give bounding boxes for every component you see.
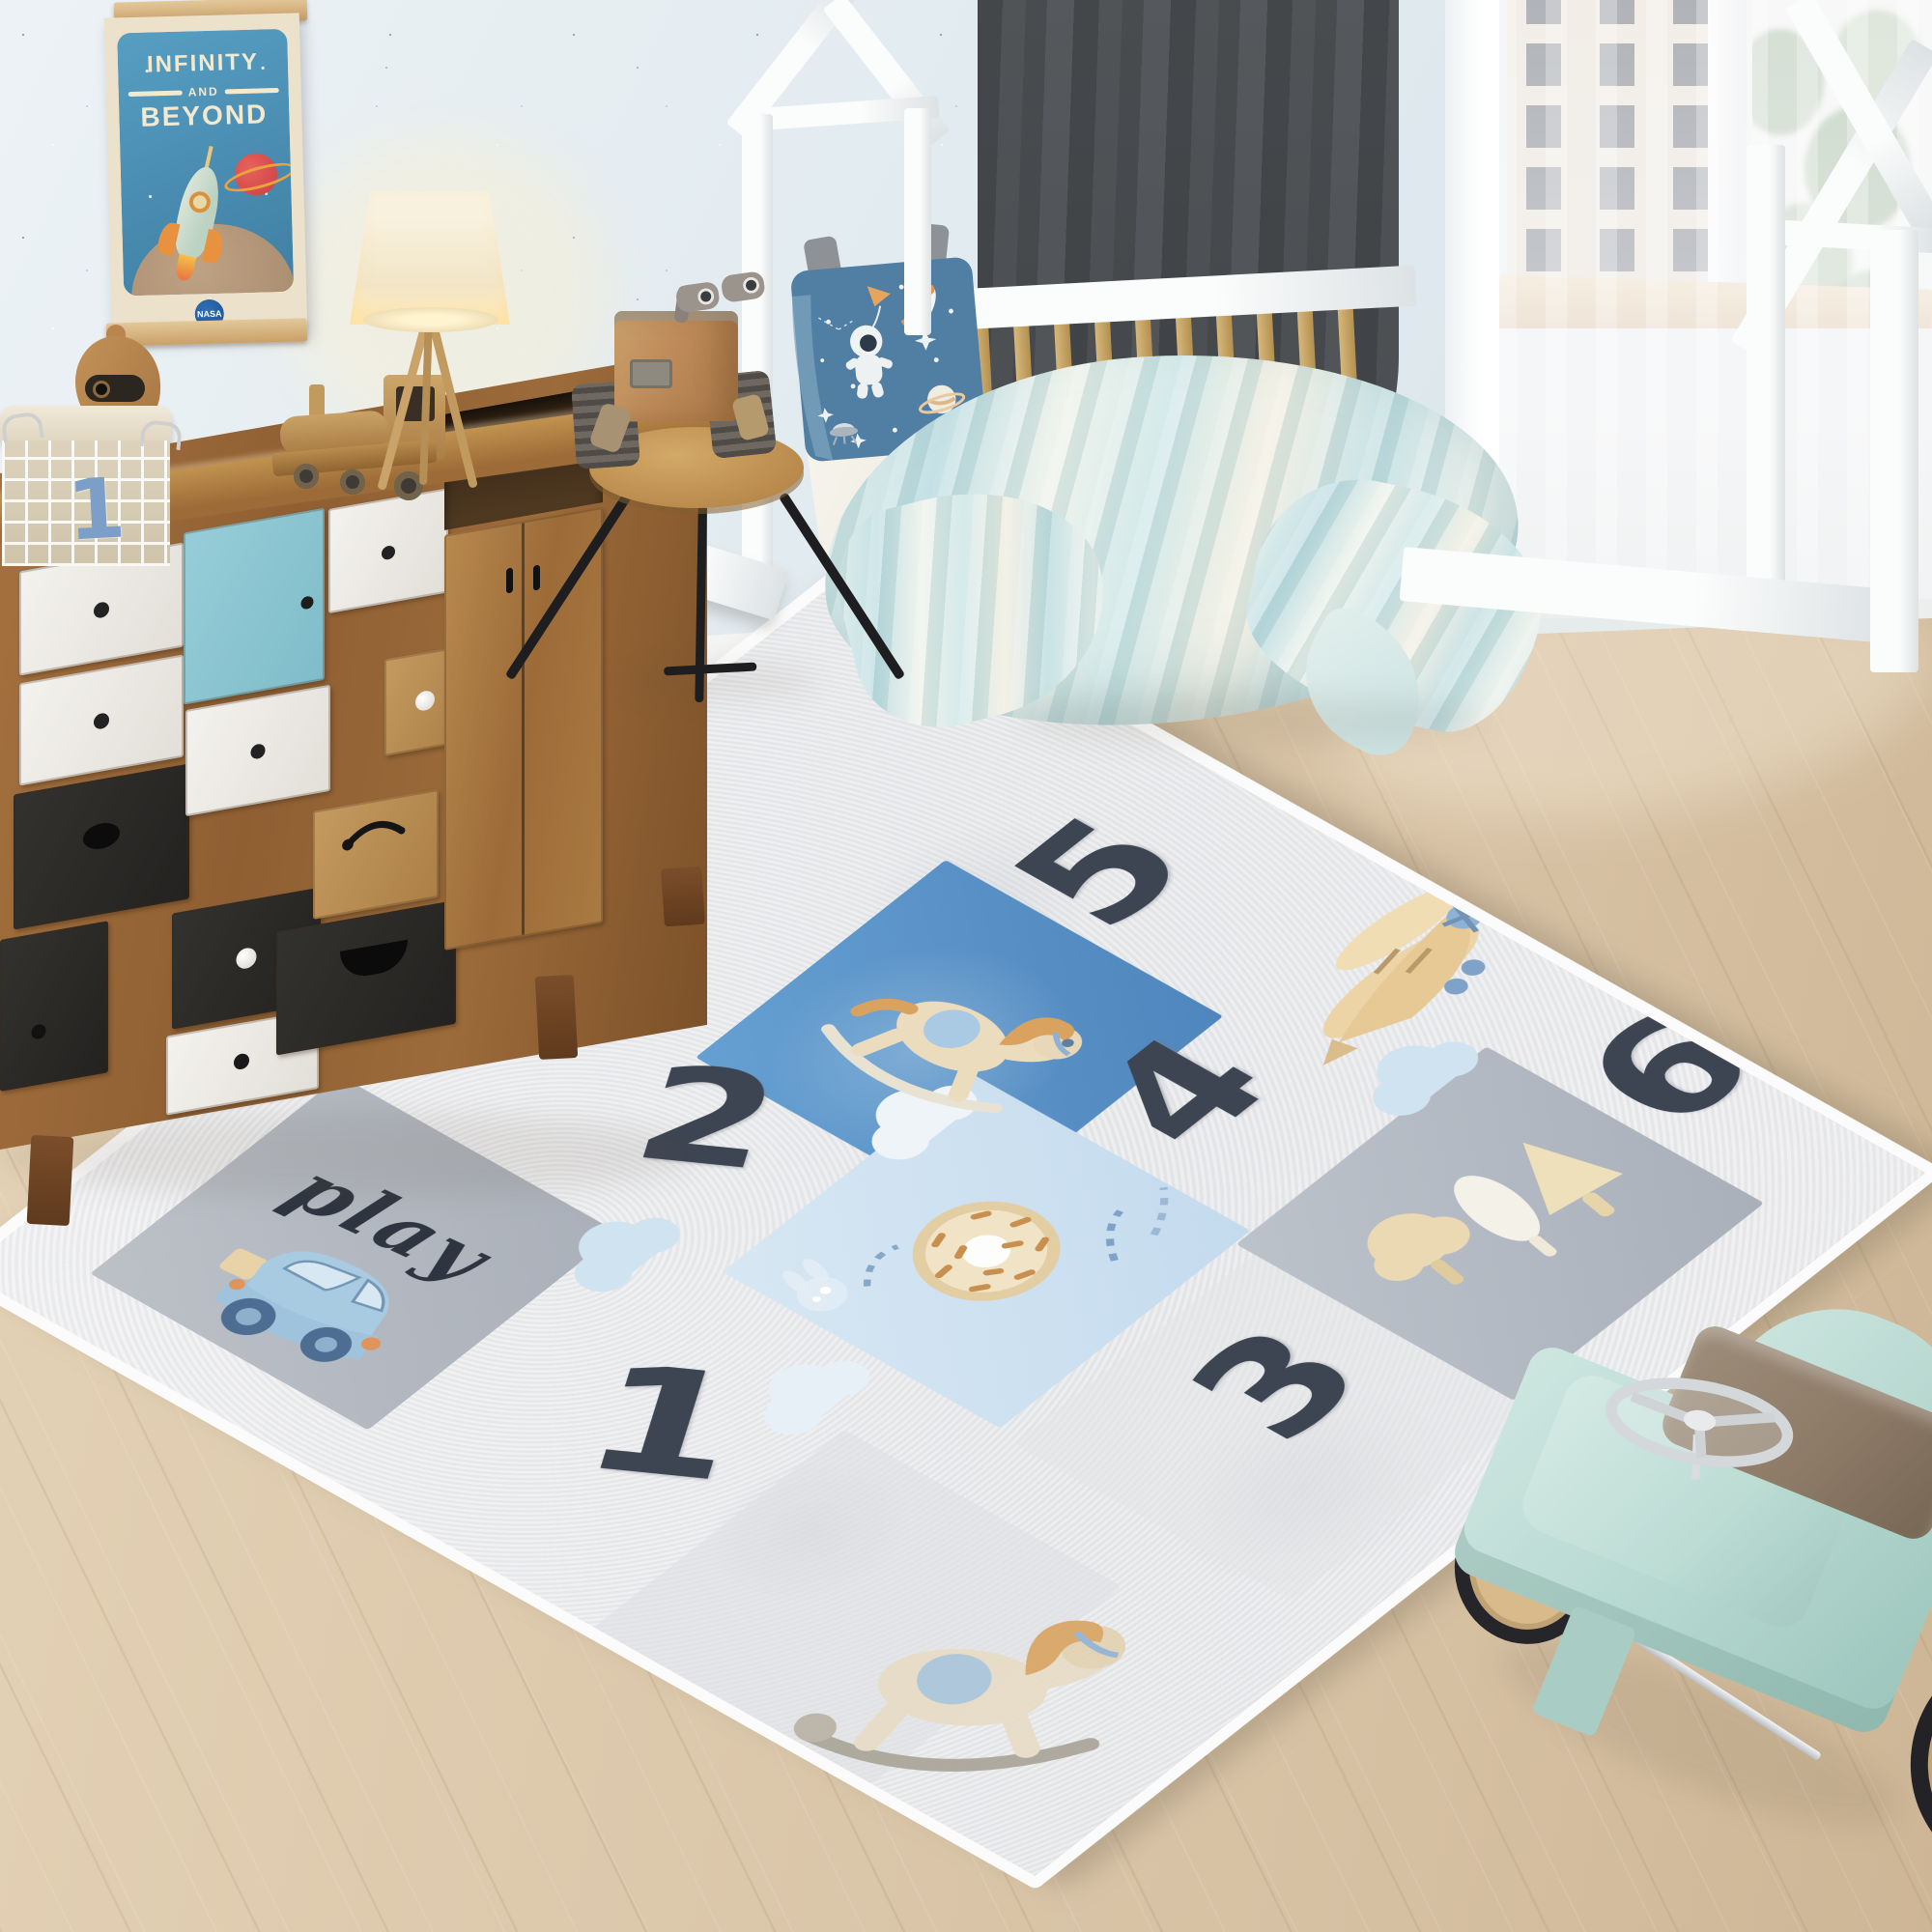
window bbox=[1495, 0, 1932, 618]
rocking-horse-icon bbox=[747, 1558, 1179, 1810]
wire-basket: 1 bbox=[0, 406, 174, 570]
poster-title-line3: BEYOND bbox=[119, 99, 290, 134]
bed-post-right bbox=[1870, 230, 1918, 672]
poster-title-line2: AND bbox=[188, 85, 219, 99]
band-line bbox=[225, 87, 279, 93]
bed-shadow bbox=[1024, 696, 1488, 746]
space-poster: INFINITY AND BEYOND bbox=[104, 13, 308, 336]
band-line bbox=[128, 90, 183, 96]
drawer-black-low bbox=[0, 921, 108, 1092]
basket-number: 1 bbox=[65, 461, 128, 560]
door-handle-icon bbox=[533, 564, 540, 590]
poster-title-band: AND bbox=[128, 83, 279, 100]
robot-eyes bbox=[674, 270, 771, 317]
poster-title-line1: INFINITY bbox=[118, 48, 289, 80]
robot-toy bbox=[568, 270, 790, 473]
lamp-shade bbox=[350, 191, 510, 325]
table-lamp bbox=[338, 184, 531, 502]
poster-art: INFINITY AND BEYOND bbox=[117, 29, 294, 297]
sideboard-leg bbox=[661, 867, 705, 927]
sideboard-leg bbox=[535, 975, 578, 1060]
nasa-logo-text: NASA bbox=[195, 309, 224, 320]
lamp-leg bbox=[427, 316, 478, 489]
bedroom-scene: INFINITY AND BEYOND bbox=[0, 0, 1932, 1932]
bed-post-right-far bbox=[1747, 145, 1785, 599]
bed-post-front-right bbox=[904, 108, 931, 335]
sideboard-leg bbox=[27, 1135, 74, 1226]
door-handle-icon bbox=[506, 567, 513, 593]
rug-number-1: 1 bbox=[569, 1345, 760, 1503]
drawer-wood-bail bbox=[313, 789, 439, 920]
table-stretcher bbox=[664, 662, 756, 675]
ride-on-car-toy bbox=[1391, 1294, 1932, 1932]
